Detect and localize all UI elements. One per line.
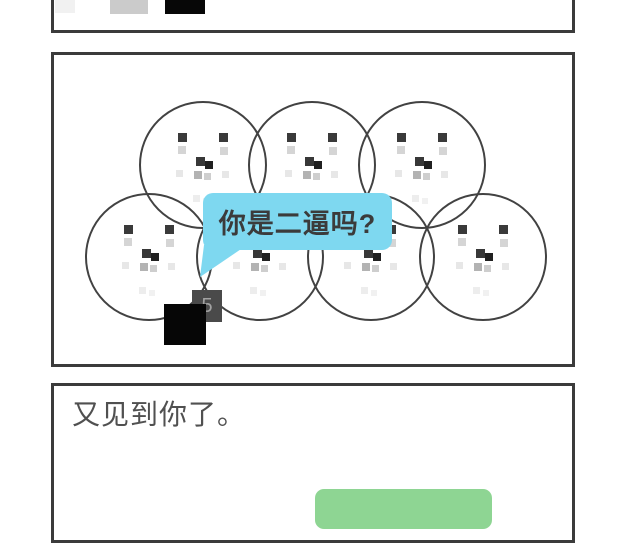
- speech-bubble: 你是二逼吗?: [203, 193, 392, 250]
- faded-square: [55, 0, 75, 13]
- caption-text: 又见到你了。: [72, 398, 246, 432]
- gray-square: [110, 0, 148, 14]
- black-square: [165, 0, 205, 14]
- panel-caption: 又见到你了。: [51, 383, 575, 543]
- panel-scene: 5 你是二逼吗?: [51, 52, 575, 367]
- next-button[interactable]: [315, 489, 492, 529]
- panel-top: [51, 0, 575, 33]
- black-square: [164, 304, 206, 345]
- speech-bubble-text: 你是二逼吗?: [219, 202, 377, 241]
